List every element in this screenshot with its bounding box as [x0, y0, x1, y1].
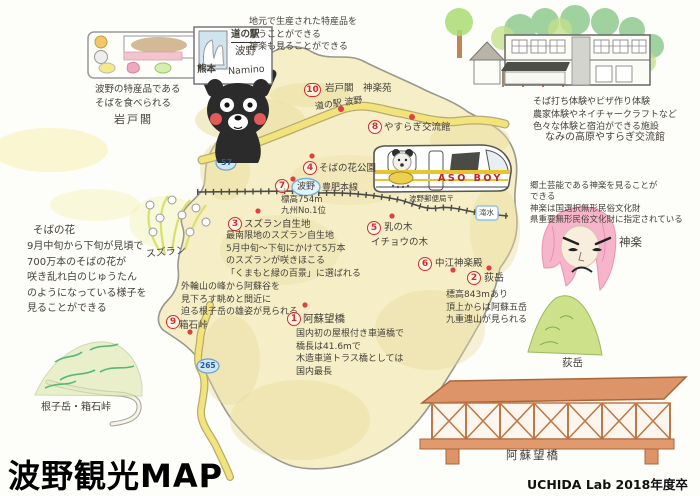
ogidake-illustration [528, 296, 602, 355]
poi-1-desc: 国内初の屋根付き車道橋で 橋長は41.6mで 木造車道トラス橋としては 国内最長 [296, 328, 404, 378]
sign-pref-label: 熊本 [197, 63, 216, 77]
poi-1-number: 1 [287, 312, 301, 326]
yasuragi-place-label: なみの高原やすらぎ交流館 [545, 131, 665, 146]
poi-9-label: 箱石峠 [179, 319, 208, 333]
namino-tourist-map: 波野の特産品である そばを食べられる 岩戸閣 道の駅 波野 熊本 Namino … [0, 0, 700, 496]
soba-note-body: 9月中旬から下旬が見頃で 700万本のそばの花が 咲き乱れ白のじゅうたん のよう… [27, 239, 147, 317]
takimizu-label: 滝水 [479, 208, 494, 219]
post-office-label: 波野郵便局〒 [409, 194, 454, 205]
poi-2-label: 荻岳 [484, 272, 504, 287]
lodge-illustration [445, 5, 664, 87]
poi-10-number: 10 [304, 83, 321, 97]
ogidake-label: 荻岳 [562, 356, 583, 371]
soba-note-title: そばの花 [33, 223, 75, 238]
route-265-badge: 265 [200, 361, 216, 370]
poi-5-number: 5 [367, 221, 381, 235]
poi-7-line-label: 豊肥本線 [322, 182, 358, 195]
poi-4-label: そばの花公園 [319, 162, 376, 176]
poi-1-label: 阿蘇望橋 [303, 312, 345, 327]
poi-6-label: 中江神楽殿 [435, 257, 483, 271]
poi-7-number: 7 [275, 179, 289, 193]
poi-5-label: 乳の木 [384, 221, 413, 235]
tray-note: 波野の特産品である そばを食べられる [95, 83, 180, 111]
field-scribbles [0, 128, 201, 248]
kagura-label: 神楽 [619, 234, 642, 251]
page-title: 波野観光MAP [8, 451, 223, 496]
poi-2-number: 2 [467, 271, 481, 285]
hakoishi-view-note: 外輪山の峰から阿蘇谷を 見下ろす眺めと間近に 迫る根子岳の雄姿が見られる [181, 281, 298, 319]
kagura-note: 郷土芸能である神楽を見ることが できる 神楽は国選択無形民俗文化財 県重要無形民… [530, 181, 683, 227]
poi-9-number: 9 [166, 315, 180, 329]
poi-2-desc: 標高843mあり 頂上からは阿蘇五岳 九重連山が見られる [446, 289, 527, 327]
yasuragi-note: そば打ち体験やピザ作り体験 農家体験やネイチャークラフトなど 色々な体験と宿泊が… [533, 96, 677, 134]
poi-8-number: 8 [368, 120, 382, 134]
credit-line: UCHIDA Lab 2018年度卒業生作成 [527, 474, 700, 496]
tray-place-label: 岩戸閣 [114, 112, 153, 128]
poi-4-number: 4 [303, 161, 317, 175]
poi-6-number: 6 [418, 257, 432, 271]
michinoeki-note: 地元で生産された特産品を 買うことができる 神楽も見ることができる [249, 16, 357, 54]
nekodake-illustration [35, 342, 142, 396]
poi-5-sublabel: イチョウの木 [371, 236, 428, 250]
poi-3-number: 3 [228, 217, 242, 231]
train-name-label: ASO BOY [438, 172, 503, 186]
soba-tray-illustration [88, 32, 204, 78]
poi-8-label: やすらぎ交流館 [384, 121, 451, 135]
nekodake-label: 根子岳・箱石峠 [41, 401, 111, 416]
route-57-badge: 57 [221, 158, 232, 167]
poi-7-station-label: 波野 [297, 181, 315, 194]
poi-3-desc: 最南限地のスズラン自生地 5月中旬〜下旬にかけて5万本 のスズランが咲きほこる … [226, 230, 361, 280]
sign-romaji-label: Namino [228, 63, 266, 79]
poi-7-desc: 標高754m 九州No.1位 [281, 195, 326, 218]
poi-10-label: 岩戸閣 神楽苑 [325, 82, 392, 96]
bridge-label: 阿蘇望橋 [506, 447, 560, 464]
